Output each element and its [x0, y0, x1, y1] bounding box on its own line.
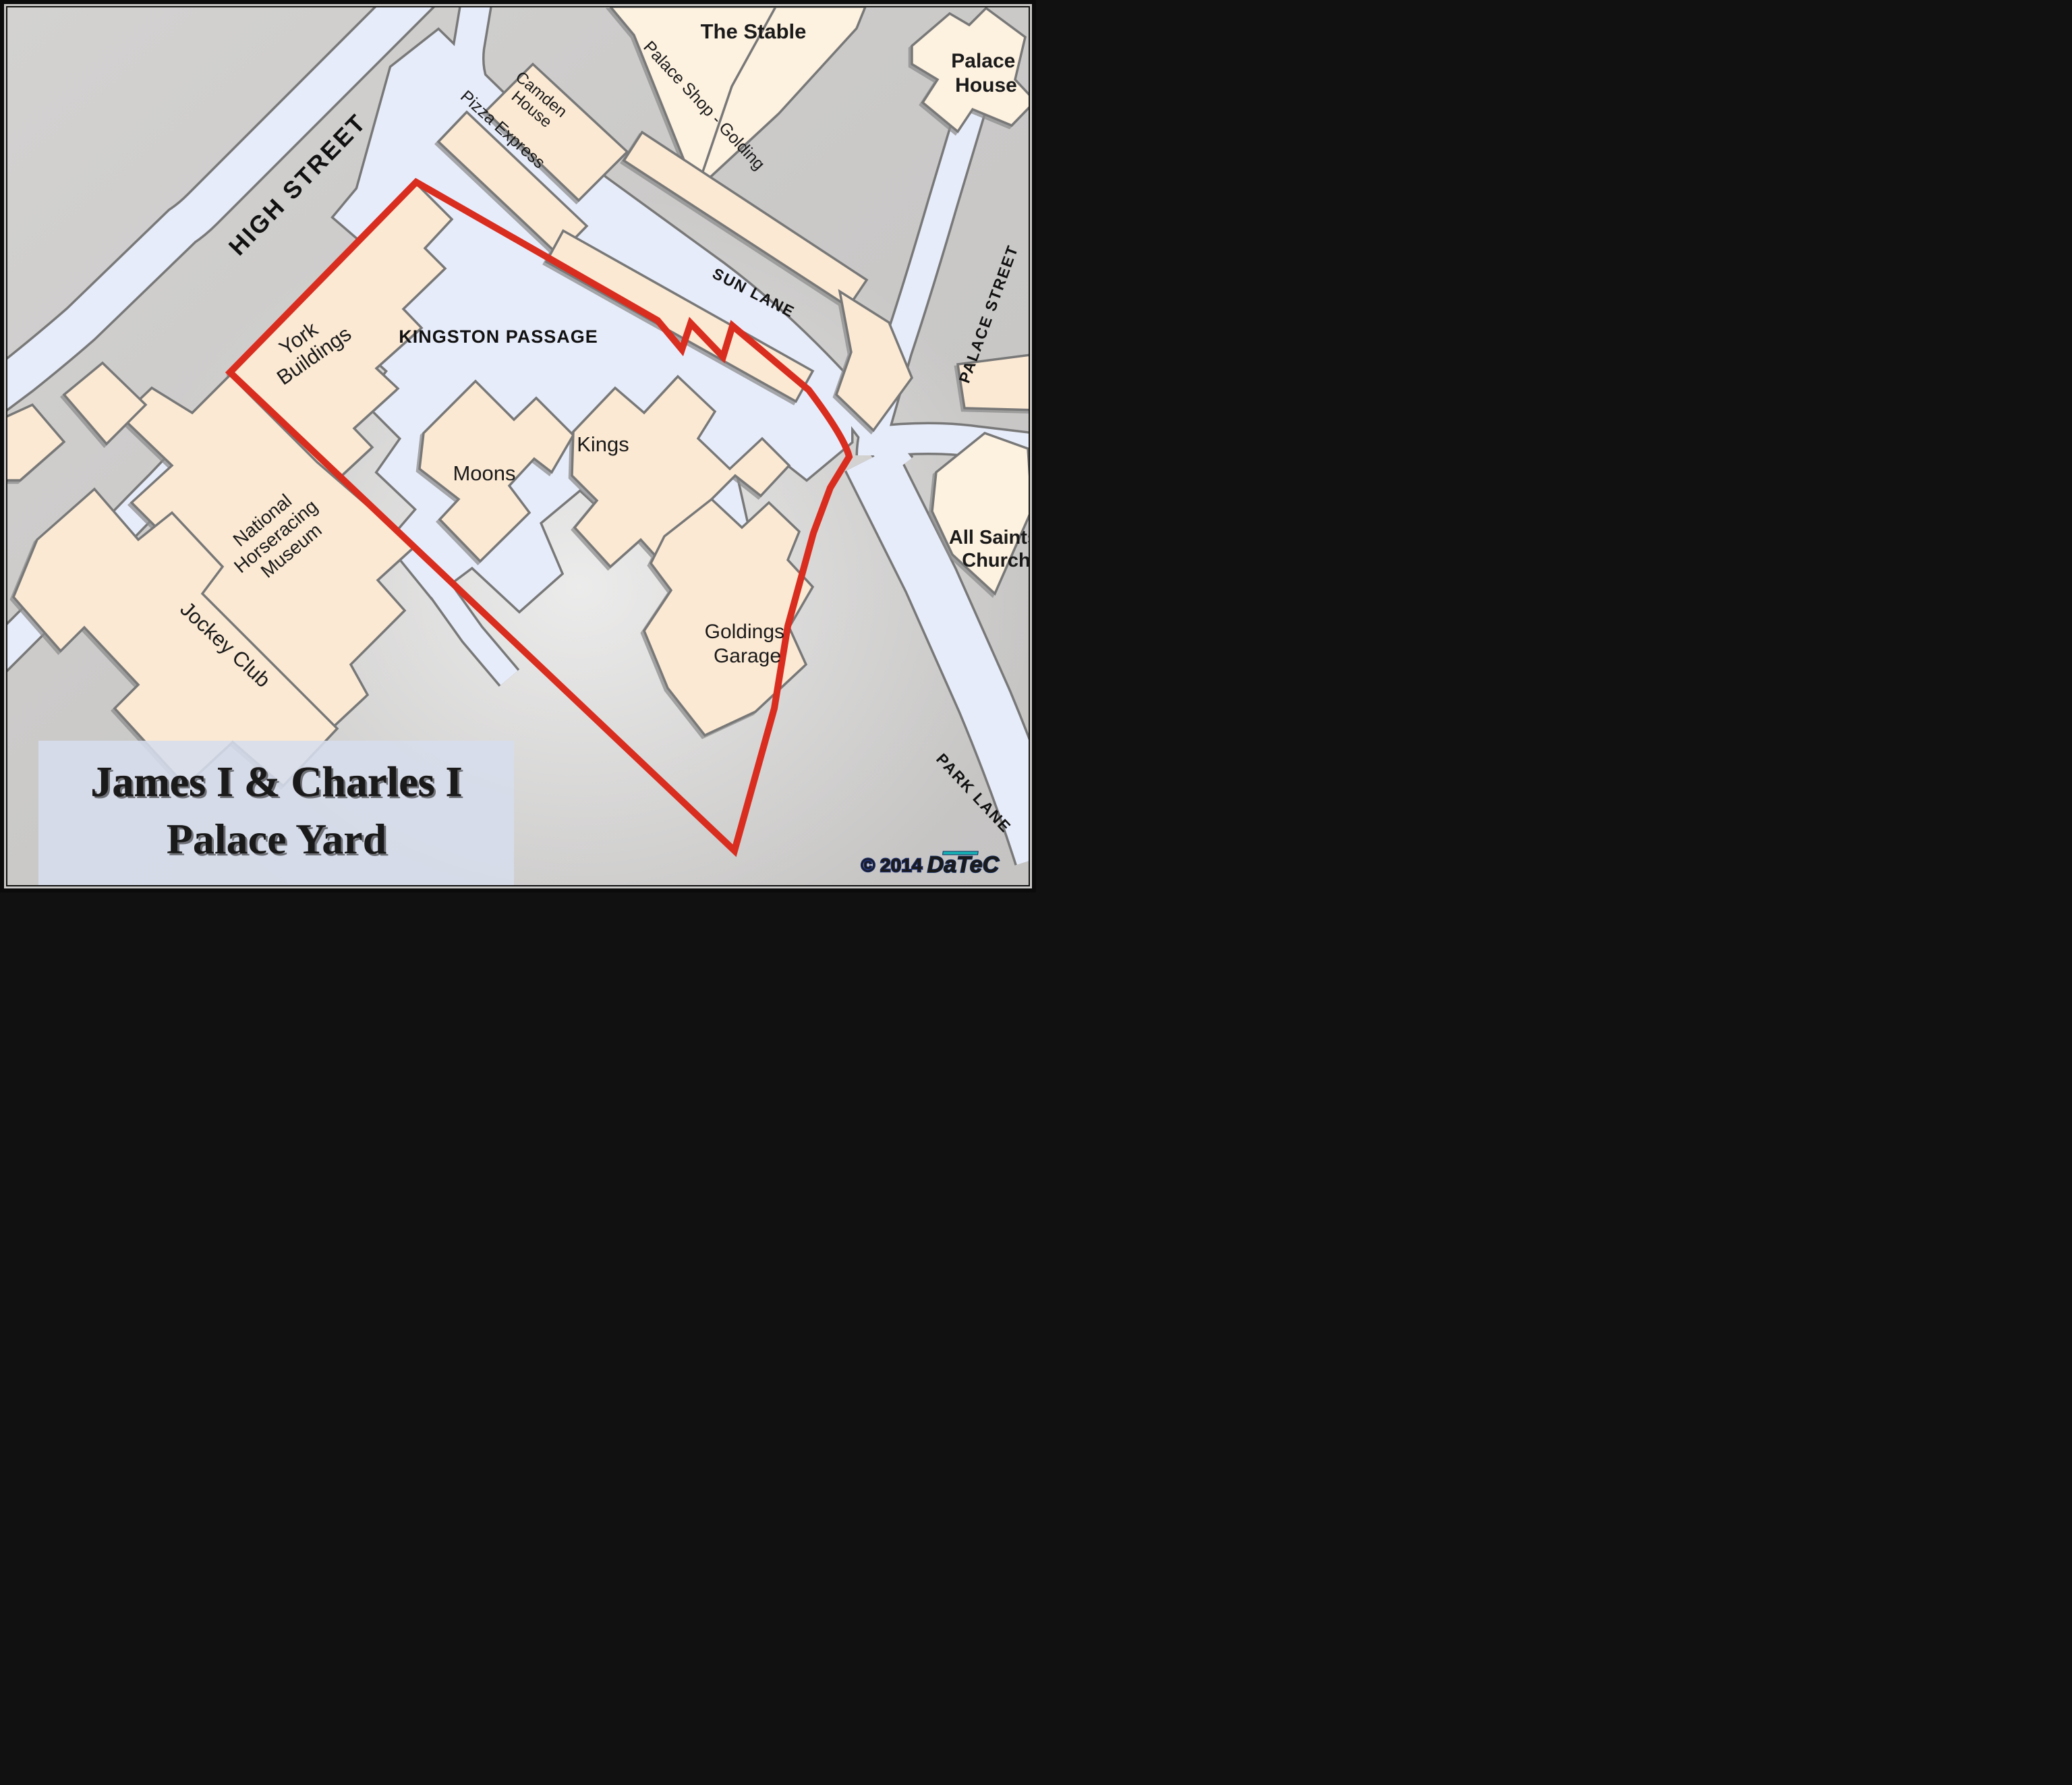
label-goldings-line1: Goldings: [705, 621, 784, 643]
title-line-1-front: James I & Charles I: [90, 758, 462, 805]
label-all-saints-line1: All Saints: [949, 527, 1029, 548]
town-map: HIGH STREET SUN LANE PALACE STREET PARK …: [7, 7, 1029, 885]
map-outer-frame: HIGH STREET SUN LANE PALACE STREET PARK …: [0, 0, 1036, 893]
map-inner-frame: HIGH STREET SUN LANE PALACE STREET PARK …: [6, 6, 1030, 886]
label-the-stable: The Stable: [701, 20, 807, 43]
title-line-2-front: Palace Yard: [167, 815, 386, 863]
label-kings: Kings: [577, 432, 629, 456]
label-palace-house-line1: Palace: [951, 50, 1015, 72]
copyright-block: © 2014 DaTeC: [861, 851, 1000, 878]
brand-logo-datec: DaTeC: [927, 852, 1000, 878]
copyright-year: © 2014: [861, 855, 923, 876]
label-moons: Moons: [453, 461, 515, 485]
street-label-kingston-passage: KINGSTON PASSAGE: [399, 327, 598, 347]
title-panel: James I & Charles I James I & Charles I …: [38, 741, 514, 885]
label-palace-house-line2: House: [955, 74, 1017, 96]
map-screenshot: HIGH STREET SUN LANE PALACE STREET PARK …: [0, 0, 1036, 893]
brand-logo-bar: [943, 851, 979, 855]
label-all-saints-line2: Church: [962, 550, 1029, 571]
label-goldings-line2: Garage: [714, 645, 781, 667]
